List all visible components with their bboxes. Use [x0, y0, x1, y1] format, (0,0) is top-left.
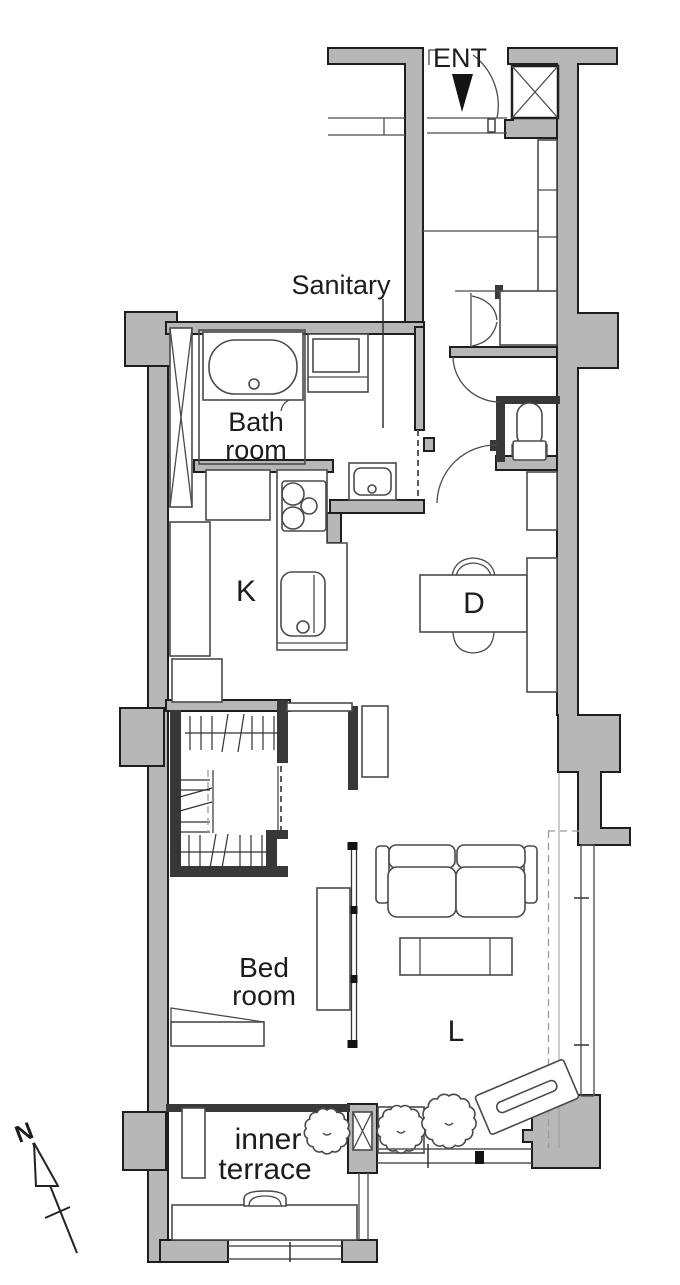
plant-icon: [377, 1106, 425, 1154]
label-bedroom-2: room: [232, 980, 296, 1011]
terrace-column-box: [353, 1112, 372, 1150]
wic-wall-left: [170, 710, 181, 875]
bed: [171, 1022, 264, 1046]
floor-plan-page: N ENT Sanitary Bath room K D Bed room L …: [0, 0, 680, 1285]
label-bathroom-1: Bath: [228, 407, 284, 437]
bathtub: [203, 332, 303, 400]
window-latch: [475, 1151, 484, 1164]
pilaster-1: [125, 312, 177, 366]
sofa-back-right: [457, 845, 525, 868]
partition-handle: [348, 1040, 358, 1048]
dining-chair-top: [452, 558, 495, 576]
terrace-stool: [244, 1191, 286, 1206]
terrace-storage: [182, 1108, 205, 1178]
kitchen: [170, 470, 347, 702]
toilet-tank: [513, 441, 546, 460]
partition-handle: [348, 842, 358, 850]
wall-kitchen-corridor: [330, 500, 424, 513]
label-dining: D: [463, 587, 485, 620]
sofa-seat-right: [456, 867, 525, 917]
pilaster-2: [120, 708, 164, 766]
corridor-wall: [348, 706, 358, 790]
wic-wall-right-joint: [277, 830, 288, 839]
pilaster-3: [123, 1112, 166, 1170]
wc-room: [512, 403, 547, 460]
bedroom-desk: [317, 888, 350, 1010]
hall-storage: [455, 140, 557, 347]
entrance-area: [328, 50, 538, 231]
dining: [420, 472, 557, 692]
hall-cabinet: [538, 140, 557, 293]
wic-wall-right-bottom: [266, 830, 277, 877]
wall-sanitary-right: [415, 327, 424, 430]
pipe-shaft-left: [170, 328, 192, 507]
counter-top: [206, 470, 270, 520]
kitchen-island: [277, 470, 347, 650]
label-living: L: [448, 1015, 465, 1048]
dining-cabinet-2: [527, 558, 557, 692]
sliding-leaf: [287, 703, 352, 711]
dining-cabinet-1: [527, 472, 557, 530]
wall-bottom-mid: [342, 1240, 377, 1262]
sofa-arm-right: [524, 846, 537, 903]
floor-plan-drawing: N ENT Sanitary Bath room K D Bed room L …: [0, 0, 680, 1285]
wc-lobby-door-arc: [453, 357, 500, 402]
wall-shelf: [362, 706, 388, 777]
counter-left: [170, 522, 210, 656]
label-kitchen: K: [236, 575, 256, 608]
sofa-seat-left: [388, 867, 456, 917]
sanitary-hall-door-arc: [437, 445, 497, 503]
terrace-bench: [172, 1205, 357, 1240]
refrigerator: [172, 659, 222, 702]
entry-door-stop: [488, 119, 495, 132]
sofa-arm-left: [376, 846, 389, 903]
dining-chair-bottom: [453, 632, 494, 653]
wc-wall-left: [496, 396, 505, 462]
walk-in-closet: [173, 703, 352, 869]
wall-stub-corridor: [424, 438, 434, 451]
label-sanitary: Sanitary: [291, 270, 391, 300]
label-bedroom-1: Bed: [239, 952, 289, 983]
hall-closet: [500, 291, 557, 345]
coffee-table: [400, 938, 512, 975]
wall-bottom-left: [160, 1240, 228, 1262]
entry-shaft-box: [512, 66, 558, 118]
north-arrow: N: [11, 1117, 77, 1253]
plant-icon: [422, 1094, 476, 1148]
plant-icon: [304, 1109, 349, 1154]
label-entrance: ENT: [433, 43, 487, 73]
entry-direction-arrow-icon: [452, 74, 473, 112]
label-bathroom-2: room: [225, 435, 287, 465]
wall-stub-island: [327, 513, 341, 543]
label-terrace-2: terrace: [218, 1153, 311, 1186]
label-terrace-1: inner: [235, 1123, 302, 1156]
wall-hall-wc: [450, 347, 557, 357]
bifold-door-icon: [472, 296, 497, 320]
interior-partitions: [166, 285, 560, 1112]
sofa-back-left: [389, 845, 455, 868]
